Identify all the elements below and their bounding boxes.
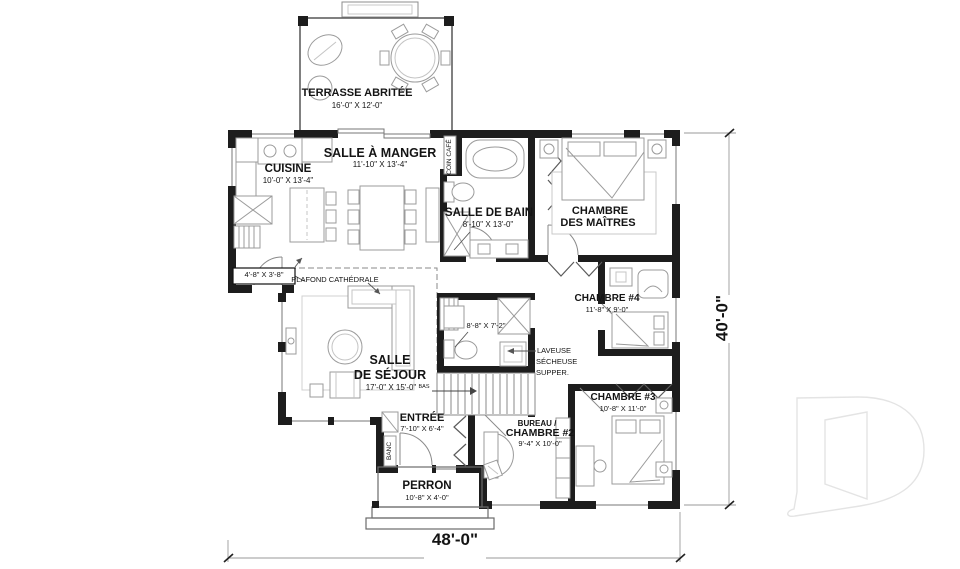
room-label-chambre-maitres-2: DES MAÎTRES bbox=[560, 218, 635, 229]
stairs bbox=[432, 373, 535, 415]
annotation-coin-cafe: COIN CAFÉ bbox=[447, 139, 454, 174]
room-label-salle-a-manger: SALLE À MANGER bbox=[324, 147, 437, 160]
room-label-salle-de-bain: SALLE DE BAIN bbox=[445, 208, 533, 220]
room-dim-chambre-4: 11'-8" X 9'-0" bbox=[586, 306, 629, 314]
room-dim-entree: 7'-10" X 6'-4" bbox=[400, 425, 443, 433]
room-dim-bureau: 9'-4" X 10'-0" bbox=[518, 440, 561, 448]
room-dim-chambre-3: 10'-8" X 11'-0" bbox=[600, 405, 647, 413]
room-dim-sejour: 17'-0" X 15'-0" bbox=[366, 384, 417, 392]
overall-width-dimension: 48'-0" bbox=[432, 531, 478, 548]
floor-plan-drawing bbox=[0, 0, 960, 569]
watermark-logo bbox=[788, 397, 924, 516]
kitchen-furniture bbox=[234, 138, 336, 248]
annotation-laveuse-2: SÉCHEUSE bbox=[536, 358, 577, 366]
annotation-laveuse-1: LAVEUSE bbox=[537, 347, 571, 355]
room-label-sejour-1: SALLE bbox=[370, 354, 411, 367]
room-label-cuisine: CUISINE bbox=[265, 164, 312, 176]
room-label-chambre-3: CHAMBRE #3 bbox=[590, 393, 655, 403]
room-label-bureau-2: CHAMBRE #2 bbox=[506, 428, 574, 439]
room-label-perron: PERRON bbox=[402, 481, 451, 493]
room-label-chambre-maitres-1: CHAMBRE bbox=[572, 206, 628, 217]
dim-vestibule: 4'-8" X 3'-8" bbox=[244, 271, 283, 279]
room-dim-salle-de-bain: 8'-10" X 13'-0" bbox=[463, 221, 514, 229]
room-dim-cuisine: 10'-0" X 13'-4" bbox=[263, 177, 314, 185]
annotation-banc: BANC bbox=[387, 442, 394, 460]
annotation-laveuse-3: SUPPER. bbox=[536, 369, 569, 377]
laundry-unit bbox=[440, 298, 530, 366]
room-dim-salle-a-manger: 11'-10" X 13'-4" bbox=[353, 161, 407, 169]
annotation-bas: BAS bbox=[418, 385, 429, 391]
room-label-sejour-2: DE SÉJOUR bbox=[354, 369, 426, 382]
room-label-terrasse: TERRASSE ABRITÉE bbox=[302, 88, 413, 99]
overall-height-dimension: 40'-0" bbox=[714, 295, 731, 341]
floor-plan-page: TERRASSE ABRITÉE 16'-0" X 12'-0" SALLE À… bbox=[0, 0, 960, 569]
room-dim-perron: 10'-8" X 4'-0" bbox=[405, 494, 448, 502]
room-dim-terrasse: 16'-0" X 12'-0" bbox=[332, 102, 383, 110]
annotation-plafond-cathedrale: PLAFOND CATHÉDRALE bbox=[291, 276, 378, 284]
dim-salle-eau: 8'-8" X 7'-2" bbox=[466, 322, 505, 330]
room-label-chambre-4: CHAMBRE #4 bbox=[574, 294, 639, 304]
room-label-entree: ENTRÉE bbox=[400, 413, 445, 424]
